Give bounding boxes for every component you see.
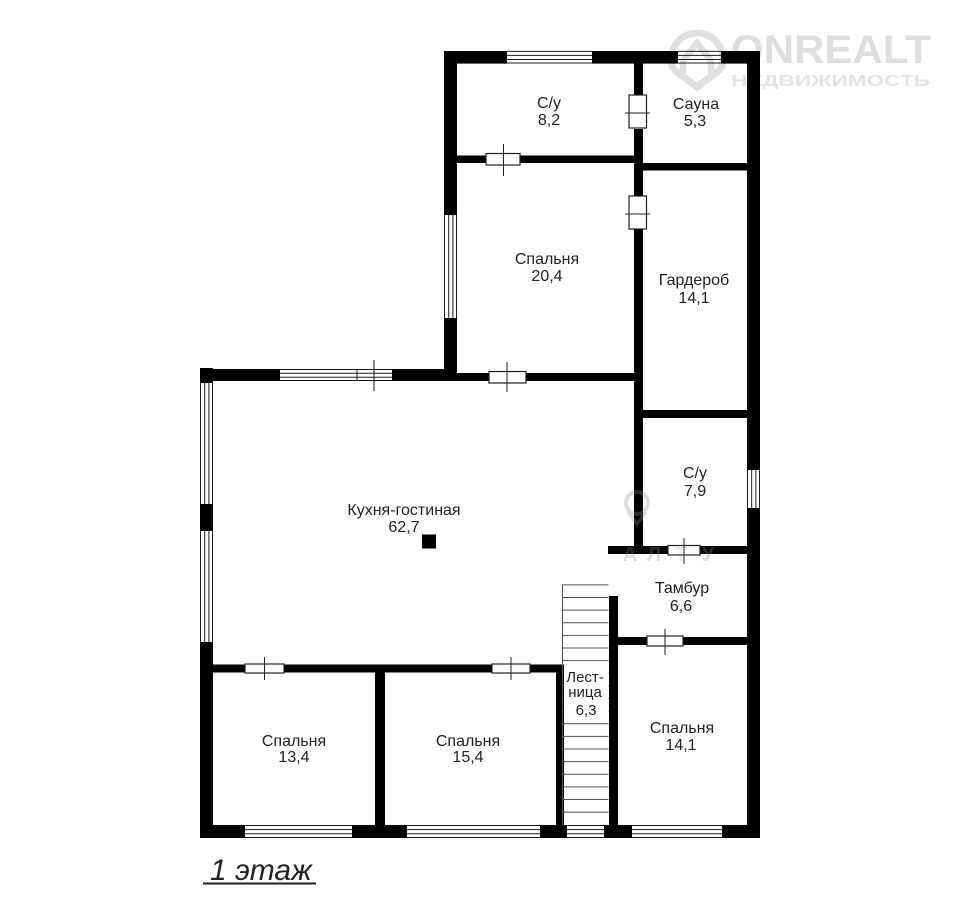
svg-text:Спальня: Спальня	[262, 733, 326, 750]
svg-text:Гардероб: Гардероб	[659, 272, 729, 289]
svg-text:Тамбур: Тамбур	[655, 580, 709, 597]
svg-text:62,7: 62,7	[388, 519, 419, 536]
svg-text:Спальня: Спальня	[436, 733, 500, 750]
svg-text:Кухня-гостиная: Кухня-гостиная	[347, 502, 460, 519]
svg-text:ONREALT: ONREALT	[731, 28, 931, 72]
svg-text:НЕДВИЖИМОСТЬ: НЕДВИЖИМОСТЬ	[731, 73, 930, 90]
svg-text:8,2: 8,2	[538, 112, 560, 129]
svg-text:Спальня: Спальня	[650, 720, 714, 737]
svg-text:С/у: С/у	[537, 95, 561, 112]
svg-text:6,3: 6,3	[576, 702, 597, 719]
svg-text:1 этаж: 1 этаж	[210, 854, 313, 887]
svg-text:5,3: 5,3	[684, 113, 706, 130]
svg-text:13,4: 13,4	[278, 749, 309, 766]
svg-text:Спальня: Спальня	[515, 251, 579, 268]
svg-text:С/у: С/у	[683, 465, 707, 482]
svg-text:7,9: 7,9	[684, 483, 706, 500]
svg-text:А: А	[623, 544, 637, 566]
svg-text:У: У	[702, 544, 715, 566]
svg-text:14,1: 14,1	[665, 737, 696, 754]
svg-text:14,1: 14,1	[678, 290, 709, 307]
svg-text:Сауна: Сауна	[673, 96, 719, 113]
svg-text:ница: ница	[568, 684, 602, 701]
svg-text:Т: Т	[675, 544, 687, 566]
svg-text:6,6: 6,6	[670, 598, 692, 615]
svg-text:20,4: 20,4	[531, 268, 562, 285]
svg-text:Л: Л	[647, 544, 661, 566]
svg-text:15,4: 15,4	[452, 749, 483, 766]
